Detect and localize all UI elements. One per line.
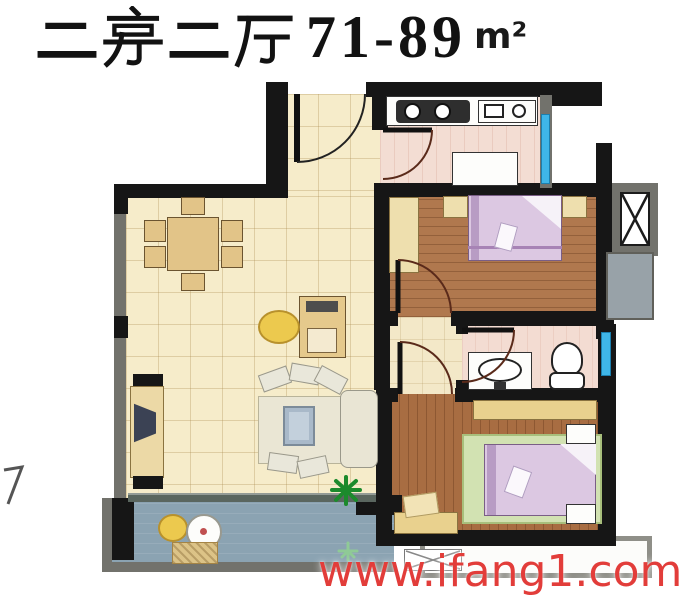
window-wall: [114, 338, 126, 498]
dining-chair: [181, 197, 205, 215]
bathroom-window: [601, 332, 611, 376]
dining-chair: [221, 220, 243, 242]
wall: [112, 498, 134, 560]
title-char-er2-icon: [168, 6, 230, 68]
title-char-fang-icon: [102, 6, 164, 68]
toilet-bowl-icon: [551, 342, 583, 376]
edge-arrow-mark: [4, 467, 22, 504]
wall: [456, 324, 468, 334]
wall: [451, 311, 614, 326]
desk-chair: [258, 310, 300, 344]
bed-blanket-line: [468, 246, 562, 249]
floorplan-image: 二房二厅 71-89 m²: [0, 0, 700, 600]
dining-table: [167, 217, 219, 271]
wall: [114, 316, 128, 338]
kitchen-window: [541, 114, 550, 184]
sink-basin-icon: [484, 104, 504, 118]
wall: [550, 82, 602, 106]
nightstand: [562, 196, 587, 218]
tv-cabinet-cap: [133, 476, 163, 489]
elevator-icon: [620, 192, 650, 246]
entry-hall-floor: [286, 94, 382, 198]
coffee-table-glass: [289, 412, 309, 440]
dining-chair: [221, 246, 243, 268]
bed-headboard: [471, 196, 479, 260]
dining-chair: [181, 273, 205, 291]
title-char-ting-icon: [234, 6, 296, 68]
wall: [266, 82, 288, 198]
wall: [116, 184, 268, 198]
wall: [366, 82, 558, 97]
nightstand: [566, 504, 596, 524]
balcony-window-divider: [128, 493, 376, 502]
wall: [376, 390, 392, 546]
nightstand: [443, 196, 468, 218]
wall: [378, 388, 398, 402]
watermark-text: www.ifang1.com: [318, 546, 682, 597]
dining-chair: [144, 246, 166, 268]
wall: [388, 311, 398, 326]
window-wall: [114, 214, 126, 316]
burner-icon: [404, 103, 421, 120]
burner-icon: [434, 103, 451, 120]
stair-shaft: [606, 252, 654, 320]
wall: [114, 184, 128, 214]
page-title: 二房二厅 71-89 m²: [36, 6, 527, 76]
wardrobe: [389, 197, 419, 273]
sofa-chaise: [340, 390, 378, 468]
corridor-floor: [378, 317, 462, 395]
bed-headboard: [487, 445, 496, 515]
bench-cushion: [403, 492, 440, 519]
title-char-er-icon: [36, 6, 98, 68]
window-wall: [102, 498, 112, 572]
nightstand: [566, 424, 596, 444]
washbasin-bowl-icon: [478, 358, 522, 382]
title-area-unit: m²: [474, 6, 527, 68]
title-area-range: 71-89: [306, 6, 466, 68]
desk-drawer: [307, 328, 337, 353]
fridge: [452, 152, 518, 186]
washbasin-tap-icon: [494, 382, 506, 390]
wardrobe: [473, 400, 597, 420]
dining-chair: [144, 220, 166, 242]
balcony-mat: [172, 542, 218, 564]
wall: [374, 184, 390, 390]
balcony-table-decor: [200, 528, 207, 535]
toilet-tank-icon: [549, 372, 585, 390]
faucet-icon: [512, 104, 526, 118]
balcony-chair: [158, 514, 188, 542]
desk-monitor: [306, 301, 338, 312]
